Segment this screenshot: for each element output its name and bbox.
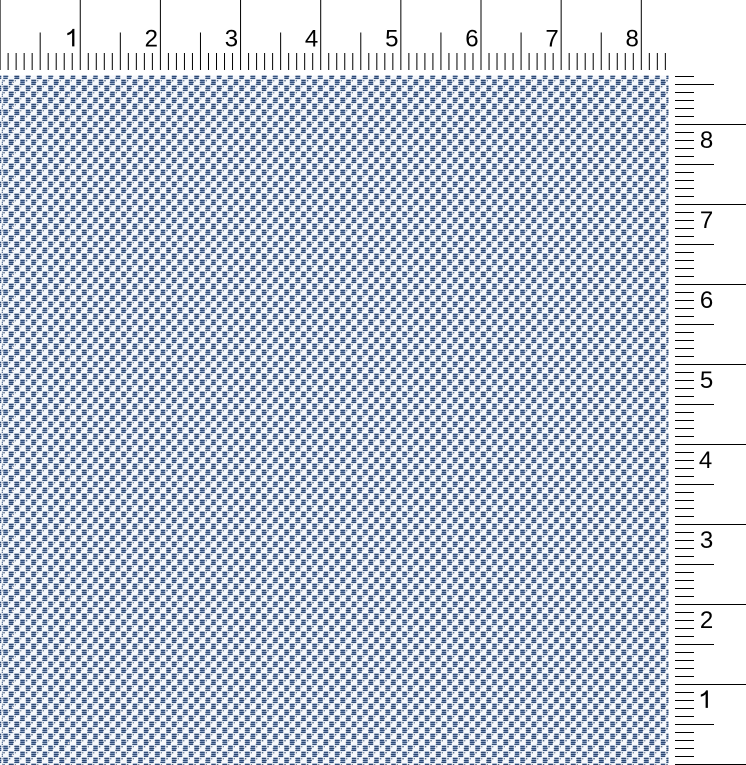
svg-text:8: 8 <box>700 127 713 154</box>
svg-text:6: 6 <box>465 26 478 53</box>
svg-text:5: 5 <box>385 26 398 53</box>
svg-text:5: 5 <box>700 367 713 394</box>
svg-text:3: 3 <box>225 26 238 53</box>
svg-text:2: 2 <box>145 26 158 53</box>
svg-text:7: 7 <box>545 26 558 53</box>
svg-text:4: 4 <box>305 26 318 53</box>
svg-text:2: 2 <box>700 607 713 634</box>
svg-text:8: 8 <box>626 26 639 53</box>
svg-text:3: 3 <box>700 527 713 554</box>
svg-text:4: 4 <box>699 447 712 474</box>
svg-text:6: 6 <box>700 287 713 314</box>
svg-text:7: 7 <box>700 207 713 234</box>
